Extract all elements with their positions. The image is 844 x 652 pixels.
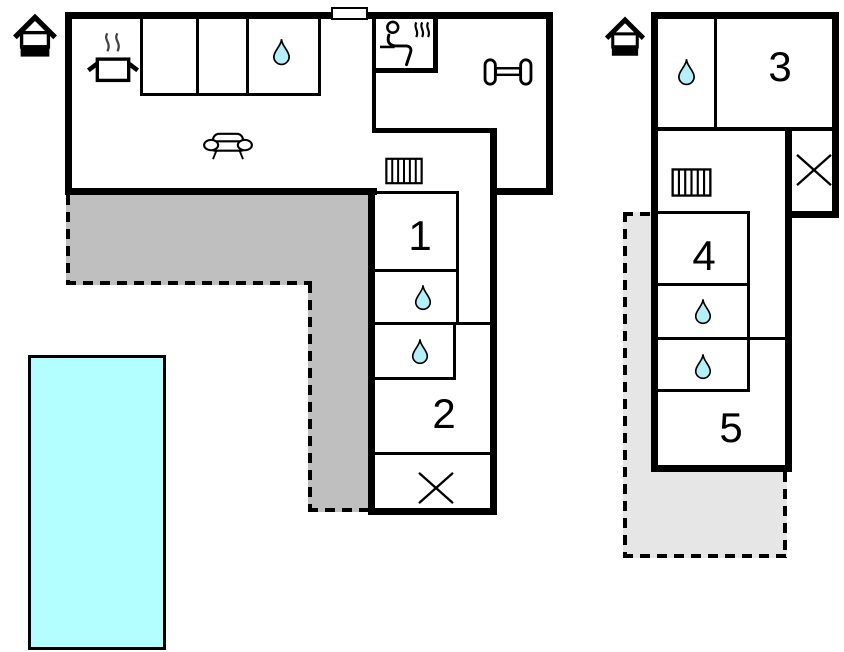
swimming-pool — [28, 355, 166, 650]
house-icon — [12, 13, 58, 58]
terrace — [308, 285, 373, 512]
cooking-pot-icon — [85, 30, 141, 86]
wall — [456, 322, 490, 325]
wall — [651, 12, 658, 472]
window-cross-icon — [795, 153, 833, 187]
wall — [785, 211, 839, 218]
terrace — [66, 191, 373, 285]
wall — [65, 188, 377, 195]
radiator-icon — [385, 157, 423, 185]
wall — [651, 465, 792, 472]
wall — [368, 508, 497, 515]
wall — [453, 325, 456, 380]
room-label-3: 3 — [768, 46, 791, 88]
water-drop-icon — [410, 337, 430, 367]
sofa-icon — [203, 131, 253, 161]
wall — [65, 12, 72, 195]
window-cross-icon — [417, 471, 455, 505]
floor-plan: 1 2 3 4 5 — [0, 0, 844, 652]
water-drop-icon — [676, 57, 697, 88]
terrace-dashed-edge — [308, 283, 312, 512]
house-icon — [604, 16, 646, 57]
room-label-1: 1 — [408, 215, 431, 257]
wall — [368, 190, 375, 515]
wall — [490, 128, 497, 515]
wall — [456, 191, 459, 325]
wall — [747, 340, 750, 392]
water-drop-icon — [693, 297, 713, 327]
water-drop-icon — [693, 352, 713, 382]
wall — [785, 128, 792, 472]
terrace-dashed-edge — [66, 195, 70, 285]
terrace-dashed-edge — [66, 281, 312, 285]
sauna-person-icon — [380, 19, 433, 69]
wall — [832, 12, 839, 218]
wall — [651, 12, 839, 19]
room-label-4: 4 — [692, 235, 715, 277]
water-drop-icon — [271, 37, 292, 68]
terrace-dashed-edge — [623, 554, 787, 558]
dumbbell-icon — [482, 57, 534, 87]
water-drop-icon — [413, 283, 433, 313]
wall — [490, 188, 553, 195]
wall — [747, 337, 785, 340]
room-label-5: 5 — [719, 407, 742, 449]
wall — [747, 211, 750, 340]
terrace-dashed-edge — [623, 212, 627, 558]
terrace-dashed-edge — [783, 472, 787, 558]
terrace-dashed-edge — [308, 508, 373, 512]
wall — [546, 12, 553, 195]
room-label-2: 2 — [432, 393, 455, 435]
wall — [65, 12, 553, 19]
radiator-icon — [671, 168, 712, 197]
